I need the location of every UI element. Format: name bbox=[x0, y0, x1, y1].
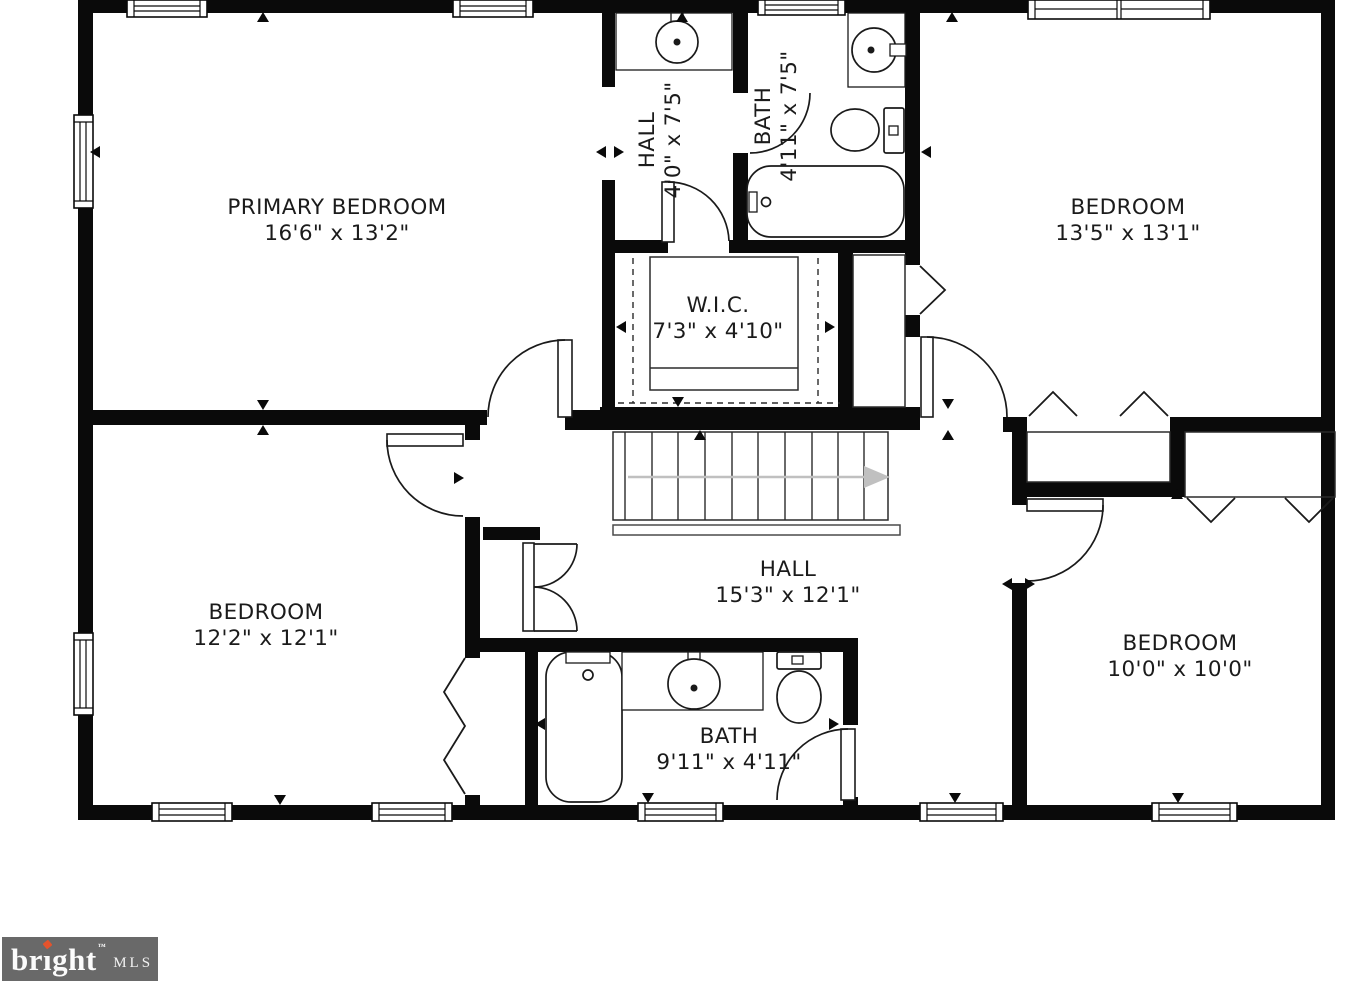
room-label-upper-hall: HALL 4'0" x 7'5" bbox=[635, 81, 686, 198]
window bbox=[152, 803, 232, 821]
svg-text:HALL: HALL bbox=[635, 112, 660, 168]
svg-text:BEDROOM: BEDROOM bbox=[208, 600, 323, 625]
staircase bbox=[613, 432, 900, 535]
svg-text:BEDROOM: BEDROOM bbox=[1070, 195, 1185, 220]
door-bottom-left-bedroom bbox=[387, 434, 463, 516]
svg-text:PRIMARY BEDROOM: PRIMARY BEDROOM bbox=[227, 195, 446, 220]
logo-wordmark: brıght™ bbox=[11, 944, 105, 975]
sink-fixture bbox=[616, 13, 732, 70]
logo-mls-text: MLS bbox=[113, 955, 153, 972]
door-primary-bedroom bbox=[488, 340, 572, 417]
door-top-right-bedroom bbox=[921, 337, 1007, 417]
svg-text:13'5" x 13'1": 13'5" x 13'1" bbox=[1055, 221, 1200, 246]
closet-top-right-bedroom bbox=[1027, 432, 1170, 482]
floor-plan-page: PRIMARY BEDROOM 16'6" x 13'2" HALL 4'0" … bbox=[0, 0, 1348, 986]
svg-text:4'11" x 7'5": 4'11" x 7'5" bbox=[777, 50, 802, 181]
window bbox=[1152, 803, 1237, 821]
bathtub-fixture bbox=[546, 652, 622, 802]
bright-mls-logo: brıght™ MLS bbox=[2, 937, 158, 981]
window bbox=[758, 0, 845, 15]
toilet-fixture bbox=[777, 652, 821, 723]
svg-text:15'3" x 12'1": 15'3" x 12'1" bbox=[715, 583, 860, 608]
floor-plan: PRIMARY BEDROOM 16'6" x 13'2" HALL 4'0" … bbox=[0, 0, 1348, 986]
svg-text:10'0" x 10'0": 10'0" x 10'0" bbox=[1107, 657, 1252, 682]
window bbox=[127, 0, 207, 17]
accordion-door bbox=[1120, 392, 1168, 416]
window bbox=[74, 633, 93, 715]
svg-text:BATH: BATH bbox=[700, 724, 759, 749]
room-label-main-hall: HALL 15'3" x 12'1" bbox=[715, 557, 860, 608]
bathtub-fixture bbox=[747, 166, 904, 237]
room-label-wic: W.I.C. 7'3" x 4'10" bbox=[652, 293, 783, 344]
sink-fixture bbox=[848, 13, 906, 87]
window bbox=[920, 803, 1003, 821]
room-label-primary-bedroom: PRIMARY BEDROOM 16'6" x 13'2" bbox=[227, 195, 446, 246]
svg-text:16'6" x 13'2": 16'6" x 13'2" bbox=[264, 221, 409, 246]
room-label-bottom-right-bedroom: BEDROOM 10'0" x 10'0" bbox=[1107, 631, 1252, 682]
svg-text:W.I.C.: W.I.C. bbox=[686, 293, 749, 318]
room-label-upper-bath: BATH 4'11" x 7'5" bbox=[751, 50, 802, 181]
svg-text:12'2" x 12'1": 12'2" x 12'1" bbox=[193, 626, 338, 651]
svg-text:BEDROOM: BEDROOM bbox=[1122, 631, 1237, 656]
sink-fixture bbox=[622, 652, 763, 710]
room-label-bottom-left-bedroom: BEDROOM 12'2" x 12'1" bbox=[193, 600, 338, 651]
trademark-symbol: ™ bbox=[98, 942, 107, 951]
room-label-main-bath: BATH 9'11" x 4'11" bbox=[656, 724, 801, 775]
closet-side-top-right-bedroom bbox=[853, 255, 905, 407]
window bbox=[74, 115, 93, 208]
accordion-door bbox=[1029, 392, 1077, 416]
window bbox=[638, 803, 723, 821]
accordion-door bbox=[1187, 498, 1235, 522]
accordion-door bbox=[444, 658, 465, 794]
svg-text:BATH: BATH bbox=[751, 87, 776, 146]
toilet-fixture bbox=[831, 108, 904, 153]
door-bottom-right-bedroom bbox=[1027, 499, 1103, 581]
accordion-door bbox=[920, 266, 945, 314]
room-label-top-right-bedroom: BEDROOM 13'5" x 13'1" bbox=[1055, 195, 1200, 246]
window bbox=[453, 0, 533, 17]
svg-text:4'0" x 7'5": 4'0" x 7'5" bbox=[661, 81, 686, 198]
svg-text:7'3" x 4'10": 7'3" x 4'10" bbox=[652, 319, 783, 344]
closet-bottom-right-bedroom bbox=[1185, 432, 1335, 497]
svg-text:HALL: HALL bbox=[760, 557, 816, 582]
window-double bbox=[1028, 0, 1210, 19]
svg-text:9'11" x 4'11": 9'11" x 4'11" bbox=[656, 750, 801, 775]
logo-flame-icon: ı bbox=[43, 944, 52, 975]
double-door-linen-closet bbox=[523, 543, 577, 631]
window bbox=[372, 803, 452, 821]
